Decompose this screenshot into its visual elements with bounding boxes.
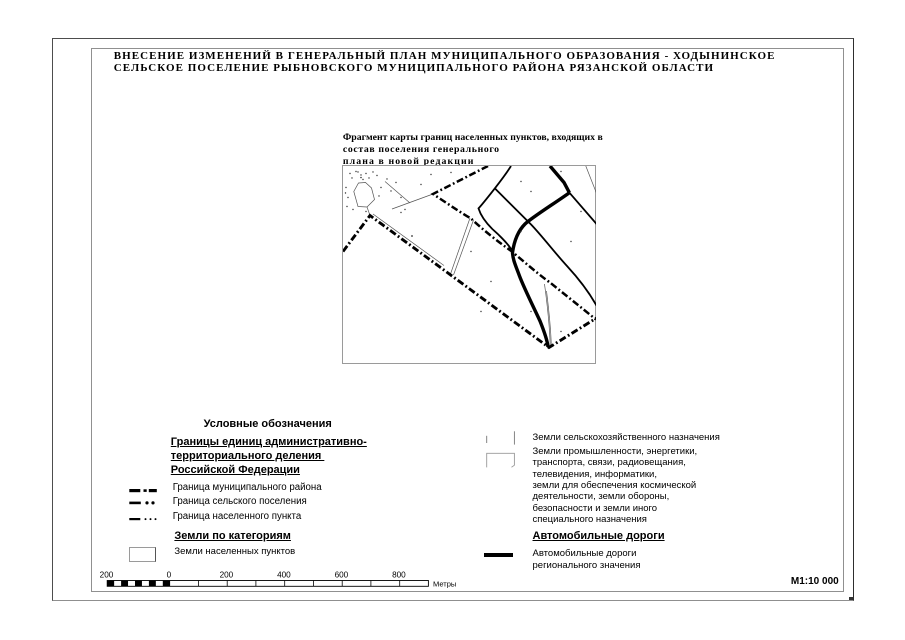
svg-text:200: 200	[220, 570, 234, 579]
svg-text:600: 600	[335, 570, 349, 579]
svg-text:800: 800	[392, 570, 406, 579]
svg-text:200: 200	[100, 570, 114, 579]
svg-text:Метры: Метры	[433, 579, 456, 588]
svg-text:400: 400	[277, 570, 291, 579]
svg-text:0: 0	[167, 570, 172, 579]
